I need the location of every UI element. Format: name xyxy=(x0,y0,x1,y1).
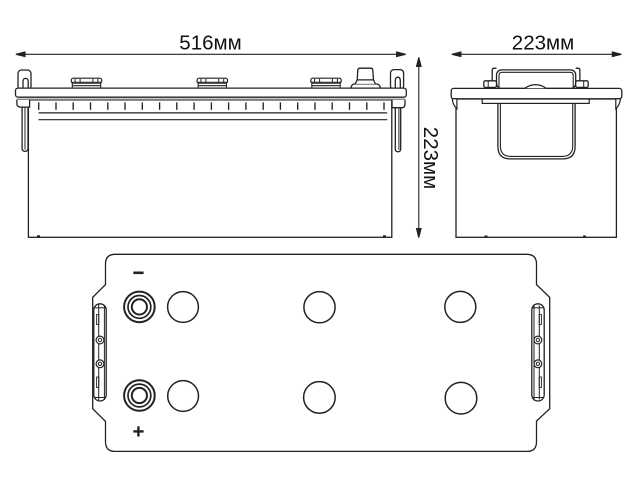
svg-text:223мм: 223мм xyxy=(419,127,442,189)
svg-text:516мм: 516мм xyxy=(179,31,241,54)
svg-text:223мм: 223мм xyxy=(512,31,574,54)
